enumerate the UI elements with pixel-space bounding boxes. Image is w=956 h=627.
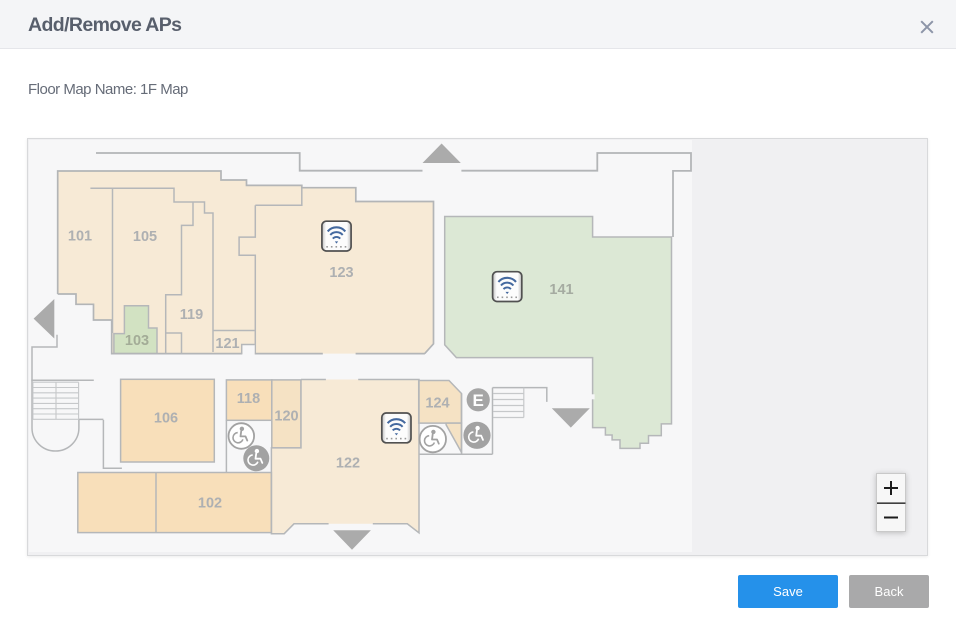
svg-text:120: 120 [274,409,298,425]
svg-text:102: 102 [198,496,222,512]
svg-text:121: 121 [215,336,239,352]
svg-text:103: 103 [125,333,149,349]
svg-text:141: 141 [549,282,573,298]
svg-text:118: 118 [237,391,260,407]
svg-text:E: E [473,391,484,410]
svg-text:119: 119 [180,307,203,323]
svg-text:122: 122 [336,456,360,472]
svg-text:106: 106 [154,411,178,427]
svg-text:101: 101 [68,229,92,245]
svg-text:124: 124 [425,396,449,412]
svg-text:105: 105 [133,229,157,245]
svg-text:123: 123 [329,265,353,281]
